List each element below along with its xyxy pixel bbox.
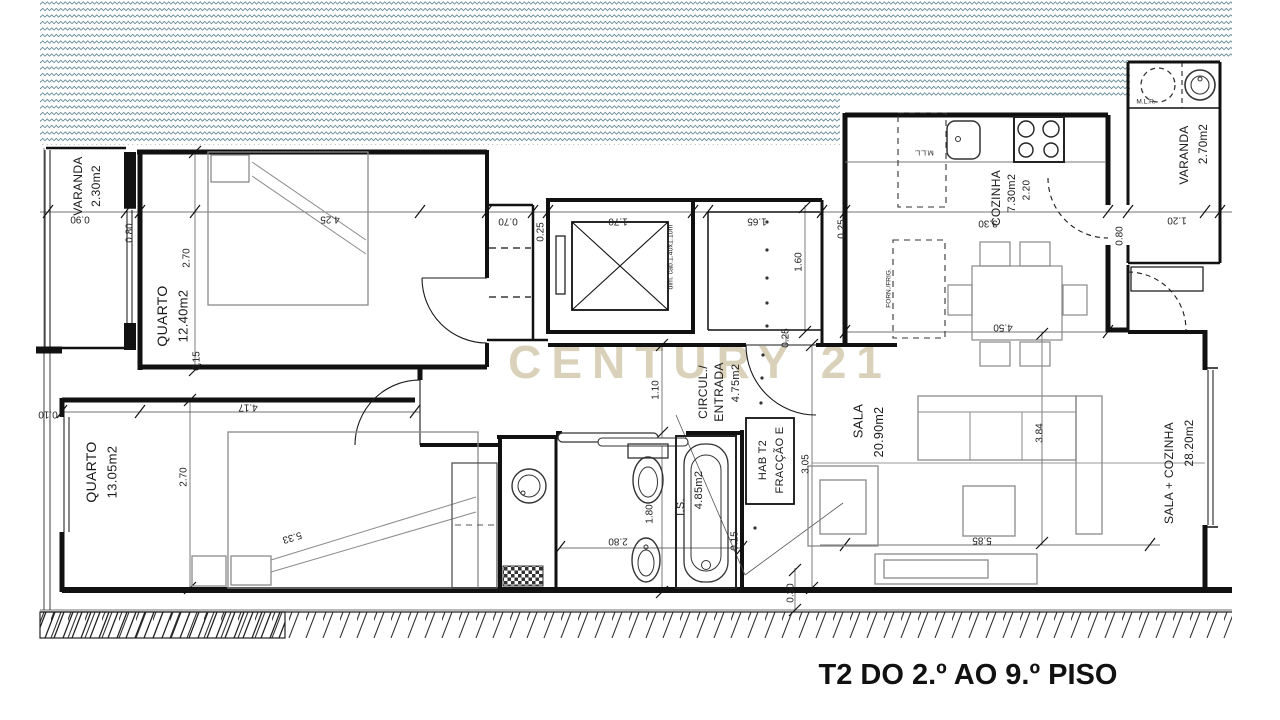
elevator-cab-note: dim. cab.1.40x1.10m: [668, 224, 675, 289]
label-sala-cozinha-area: 28.20m2: [1184, 420, 1196, 467]
dim-label: 3.05: [801, 454, 812, 474]
dim-label: 0.15: [192, 351, 203, 371]
label-circul-name2: ENTRADA: [712, 362, 726, 421]
fraction-box-line1: HAB T2: [757, 440, 769, 480]
dim-label: 2.80: [608, 536, 628, 547]
label-varanda-right-area: 2.70m2: [1198, 124, 1210, 164]
dim-label: 0.25: [781, 328, 792, 348]
label-varanda-right-name: VARANDA: [1177, 125, 1191, 184]
bed-quarto2: [228, 432, 478, 588]
floor-plan-canvas: CENTURY 21: [0, 0, 1280, 720]
washing-machine-label: M.L.R.: [1136, 99, 1155, 106]
label-cozinha-area: 7.30m2: [1006, 174, 1018, 213]
dim-label: 3.30: [978, 218, 998, 229]
tv-cabinet: [875, 554, 1037, 584]
dim-label: 1.65: [747, 216, 767, 227]
dim-label: 4.25: [320, 214, 340, 225]
label-quarto1-name: QUARTO: [154, 285, 170, 346]
floor-plan-page: CENTURY 21: [0, 0, 1280, 720]
label-circul-area: 4.75m2: [730, 364, 742, 403]
dim-label: 3.84: [1035, 423, 1046, 443]
label-is-area: 4.85m2: [693, 471, 705, 510]
floor-grate: [503, 566, 543, 586]
door-kitchen-balcony: [1048, 178, 1108, 238]
dim-label: 2.70: [179, 467, 190, 487]
sofa-chaise: [1076, 396, 1102, 534]
dim-label: 0.30: [786, 583, 797, 603]
nightstand: [192, 556, 226, 586]
washing-machine: [1141, 68, 1175, 102]
dining-set: [948, 242, 1087, 366]
dim-label: 0.10: [38, 409, 58, 420]
adjacent-area-hatch: [40, 0, 1232, 145]
dim-label: 0.70: [498, 216, 518, 227]
bed-quarto1: [208, 152, 368, 305]
dim-label: 4.17: [238, 402, 258, 413]
dim-label: 2.70: [182, 248, 193, 268]
dishwasher-label: M.L.L.: [914, 149, 934, 156]
dim-label: 1.80: [645, 504, 656, 524]
label-varanda-left-area: 2.30m2: [89, 165, 103, 207]
sink: [947, 121, 980, 159]
door-quarto2: [355, 380, 420, 445]
doors: [355, 178, 1186, 445]
dim-label: 0.15: [730, 531, 741, 551]
dim-label: 0.25: [536, 222, 547, 242]
fraction-box: HAB T2 FRACÇÃO E: [746, 418, 794, 504]
ground-hatch: [40, 612, 1232, 638]
washbasin: [512, 469, 546, 503]
dimension-labels: 0.90 0.80 4.25 2.70 0.15 0.10 4.17 2.70 …: [38, 214, 1187, 603]
side-table: [963, 486, 1015, 536]
bathroom-fixtures: [503, 433, 736, 588]
dim-label: 5.85: [972, 535, 992, 546]
plan-title: T2 DO 2.º AO 9.º PISO: [819, 659, 1118, 691]
label-quarto1-area: 12.40m2: [176, 290, 191, 343]
toilet: [633, 457, 663, 503]
label-cozinha-width: 2.20: [1022, 180, 1033, 201]
room-labels: VARANDA 2.30m2 QUARTO 12.40m2 QUARTO 13.…: [71, 124, 1210, 524]
sofa: [918, 396, 1076, 460]
balcony-appliances: [1141, 68, 1215, 102]
dim-label: 0.25: [837, 219, 848, 239]
label-sala-cozinha-name: SALA + COZINHA: [1162, 422, 1176, 524]
dim-label: 1.20: [1167, 215, 1187, 226]
fridge-box: [893, 240, 945, 338]
dim-label: 4.50: [993, 322, 1013, 333]
door-living-balcony: [1128, 272, 1186, 330]
label-quarto2-area: 13.05m2: [105, 446, 120, 499]
label-varanda-left-name: VARANDA: [71, 156, 85, 215]
label-circul-name1: CIRCUL./: [696, 365, 710, 419]
dishwasher-box: [898, 113, 946, 207]
fraction-box-line2: FRACÇÃO E: [773, 427, 786, 494]
dim-label: 0.80: [1115, 226, 1126, 246]
dim-label: 1.10: [651, 380, 662, 400]
oven-fridge-label: FORN./FRIG.: [886, 268, 893, 308]
label-sala-name: SALA: [851, 404, 866, 438]
dim-label: 0.90: [70, 214, 90, 225]
door-quarto1: [422, 278, 487, 343]
dim-label: 1.60: [794, 252, 805, 272]
dim-label: 0.80: [125, 223, 136, 243]
furniture-bedrooms: [192, 152, 497, 588]
wash-tank: [1185, 70, 1215, 100]
label-sala-area: 20.90m2: [872, 407, 886, 458]
dim-label: 1.70: [608, 216, 628, 227]
label-is-name: I.S.: [675, 498, 687, 516]
label-quarto2-name: QUARTO: [83, 441, 99, 502]
dining-table: [972, 266, 1062, 340]
dim-label: 5.33: [281, 529, 303, 545]
